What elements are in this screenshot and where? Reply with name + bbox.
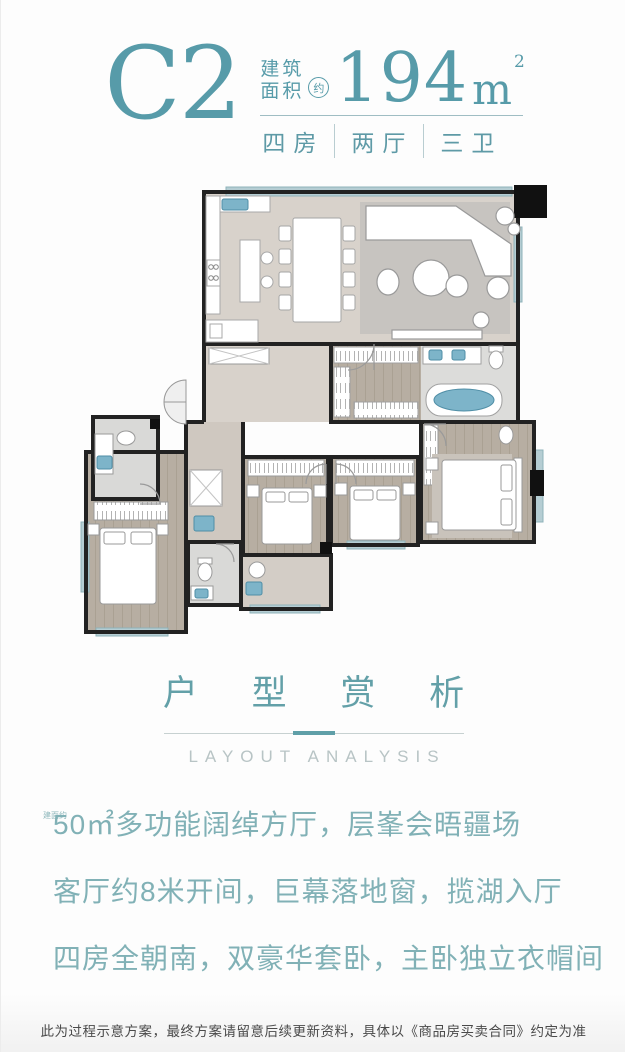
disclaimer: 此为过程示意方案，最终方案请留意后续更新资料，具体以《商品房买卖合同》约定为准 xyxy=(1,1020,625,1040)
chair xyxy=(343,272,355,287)
nightstand xyxy=(426,458,438,470)
highlight-line: 建面约 50㎡多功能阔绰方厅，层峯会晤疆场 xyxy=(43,803,584,843)
pillow xyxy=(501,499,512,525)
coffee-table xyxy=(446,275,468,297)
tag-bedrooms: 四房 xyxy=(260,124,334,158)
pillow xyxy=(289,492,308,502)
tv-console xyxy=(392,330,482,339)
chair xyxy=(279,249,291,264)
entry-door-leaf xyxy=(164,402,186,424)
side-table xyxy=(508,223,520,235)
highlight-text: 客厅约8米开间，巨幕落地窗，揽湖入厅 xyxy=(53,870,563,910)
basin xyxy=(249,562,265,578)
toilet xyxy=(499,426,513,444)
area-label-line1: 建筑 xyxy=(260,59,304,81)
pillow xyxy=(266,492,285,502)
highlight-line: 四房全朝南，双豪华套卧，主卧独立衣帽间 xyxy=(43,937,584,977)
chair xyxy=(343,295,355,310)
utility-sink xyxy=(194,516,214,531)
living-area xyxy=(360,202,520,339)
chair xyxy=(343,226,355,241)
wardrobe xyxy=(94,502,168,520)
vanity-sink xyxy=(429,350,442,360)
toilet xyxy=(489,351,503,369)
floor-plan xyxy=(64,172,564,647)
area-unit: m xyxy=(472,73,512,107)
section-heading: 户 型 赏 析 LAYOUT ANALYSIS xyxy=(1,665,625,767)
armchair xyxy=(377,269,399,295)
area-exponent: 2 xyxy=(514,52,525,72)
stove xyxy=(207,260,220,286)
closet-wardrobe xyxy=(334,367,350,417)
closet-wardrobe xyxy=(354,402,418,418)
divider-accent xyxy=(293,731,335,735)
armchair xyxy=(487,277,509,299)
promo-page: C2 建筑 面积 约 194 m 2 四房 两厅 三卫 xyxy=(0,0,625,1052)
area-row: 建筑 面积 约 194 m 2 xyxy=(260,52,522,106)
entry-door-leaf xyxy=(164,380,186,402)
chair xyxy=(279,226,291,241)
area-value: 194 xyxy=(335,52,468,106)
nightstand xyxy=(335,483,347,495)
nightstand xyxy=(314,485,326,497)
dining-table xyxy=(293,218,341,322)
kitchen-sink xyxy=(222,199,248,210)
unit-code: C2 xyxy=(104,38,240,130)
section-subtitle: LAYOUT ANALYSIS xyxy=(1,747,625,767)
closet-wardrobe xyxy=(334,347,418,363)
coffee-table xyxy=(413,260,449,296)
pillow xyxy=(131,532,152,544)
stool xyxy=(261,252,273,264)
divider-line xyxy=(164,733,464,734)
toilet xyxy=(198,563,212,581)
kitchen-island xyxy=(240,240,260,302)
area-prefix: 建面约 xyxy=(43,811,53,821)
pillow xyxy=(377,490,396,500)
vanity-sink xyxy=(97,456,112,469)
nightstand xyxy=(403,483,415,495)
chair xyxy=(279,272,291,287)
approx-badge: 约 xyxy=(308,77,329,98)
highlight-text: 50㎡多功能阔绰方厅，层峯会晤疆场 xyxy=(53,803,521,843)
chair xyxy=(279,295,291,310)
tag-bathrooms: 三卫 xyxy=(423,124,512,158)
vanity-sink xyxy=(452,350,465,360)
vanity-sink xyxy=(195,589,208,598)
nightstand xyxy=(426,522,438,534)
pillow xyxy=(501,465,512,491)
highlight-line: 客厅约8米开间，巨幕落地窗，揽湖入厅 xyxy=(43,870,584,910)
header-right: 建筑 面积 约 194 m 2 四房 两厅 三卫 xyxy=(260,52,522,158)
nightstand xyxy=(157,524,168,535)
nightstand xyxy=(247,485,259,497)
nightstand xyxy=(88,524,99,535)
laundry-sink xyxy=(246,582,262,595)
chair xyxy=(343,249,355,264)
bathtub-water xyxy=(434,389,494,411)
pouf xyxy=(473,312,489,328)
pillow xyxy=(104,532,125,544)
wardrobe xyxy=(248,460,324,476)
tag-livingrooms: 两厅 xyxy=(334,124,423,158)
side-table xyxy=(496,207,514,225)
layout-tags: 四房 两厅 三卫 xyxy=(260,115,522,158)
area-label: 建筑 面积 xyxy=(260,59,304,107)
pillow xyxy=(354,490,373,500)
stool xyxy=(261,276,273,288)
section-title: 户 型 赏 析 xyxy=(1,665,625,716)
header: C2 建筑 面积 约 194 m 2 四房 两厅 三卫 xyxy=(1,0,625,158)
highlight-text: 四房全朝南，双豪华套卧，主卧独立衣帽间 xyxy=(53,937,604,977)
area-label-line2: 面积 xyxy=(260,81,304,103)
unit-c2-floor-plan xyxy=(64,172,564,642)
toilet xyxy=(117,431,135,445)
